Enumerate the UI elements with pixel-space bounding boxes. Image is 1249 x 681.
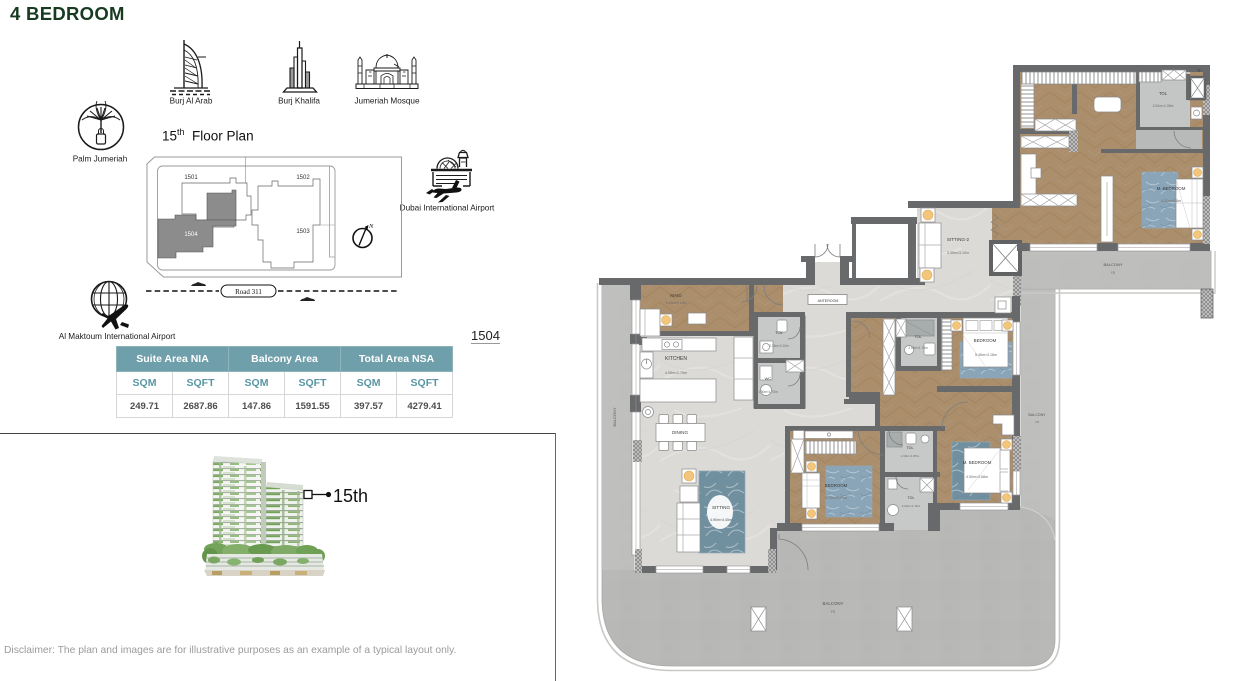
svg-text:4.38m×3.8m: 4.38m×3.8m (1161, 199, 1181, 203)
svg-text:G: G (1197, 68, 1200, 73)
svg-text:5.45m×3.18m: 5.45m×3.18m (975, 353, 997, 357)
svg-text:FB: FB (1035, 420, 1039, 424)
svg-text:WC: WC (765, 376, 772, 381)
svg-text:FB: FB (1111, 271, 1115, 275)
svg-text:4.50m×3.68m: 4.50m×3.68m (966, 475, 988, 479)
svg-text:M. BEDROOM: M. BEDROOM (963, 460, 992, 465)
svg-text:2.00m×1.05m: 2.00m×1.05m (1153, 104, 1174, 108)
svg-text:3.15m×2.10m: 3.15m×2.10m (666, 301, 687, 305)
svg-text:MAID: MAID (670, 293, 682, 298)
svg-text:BEDROOM: BEDROOM (825, 483, 848, 488)
svg-text:3.70m×3.25m: 3.70m×3.25m (825, 496, 847, 500)
svg-text:TOL: TOL (1159, 91, 1168, 96)
svg-text:3.35m×3.10m: 3.35m×3.10m (947, 251, 969, 255)
svg-text:BALCONY: BALCONY (823, 601, 844, 606)
svg-text:FB: FB (831, 610, 836, 614)
svg-text:BALCONY: BALCONY (1028, 413, 1046, 417)
svg-text:TOL: TOL (914, 335, 921, 339)
svg-text:M. BEDROOM: M. BEDROOM (1157, 186, 1186, 191)
svg-text:2.15m×3.10m: 2.15m×3.10m (769, 344, 789, 348)
svg-text:ANTEROOM: ANTEROOM (818, 299, 839, 303)
svg-text:TOL: TOL (775, 330, 783, 335)
svg-text:2.15m×1.70m: 2.15m×1.70m (908, 346, 928, 350)
svg-text:SITTING-2: SITTING-2 (947, 237, 970, 242)
svg-text:1.90m×1.70m: 1.90m×1.70m (758, 390, 778, 394)
svg-text:2.00m×1.15m: 2.00m×1.15m (902, 504, 921, 508)
svg-text:1.90m×1.85m: 1.90m×1.85m (901, 454, 920, 458)
svg-text:4.90m×4.45m: 4.90m×4.45m (710, 518, 732, 522)
svg-text:BEDROOM: BEDROOM (974, 338, 997, 343)
svg-text:SITTING: SITTING (712, 505, 731, 510)
svg-text:4.95m×2.75m: 4.95m×2.75m (665, 371, 687, 375)
svg-text:DINING: DINING (672, 430, 689, 435)
svg-text:BALCONY: BALCONY (1103, 262, 1122, 267)
svg-text:TOL: TOL (908, 496, 915, 500)
svg-text:BALCONY: BALCONY (612, 407, 617, 426)
svg-text:KITCHEN: KITCHEN (665, 356, 687, 362)
svg-text:TOL: TOL (907, 446, 914, 450)
